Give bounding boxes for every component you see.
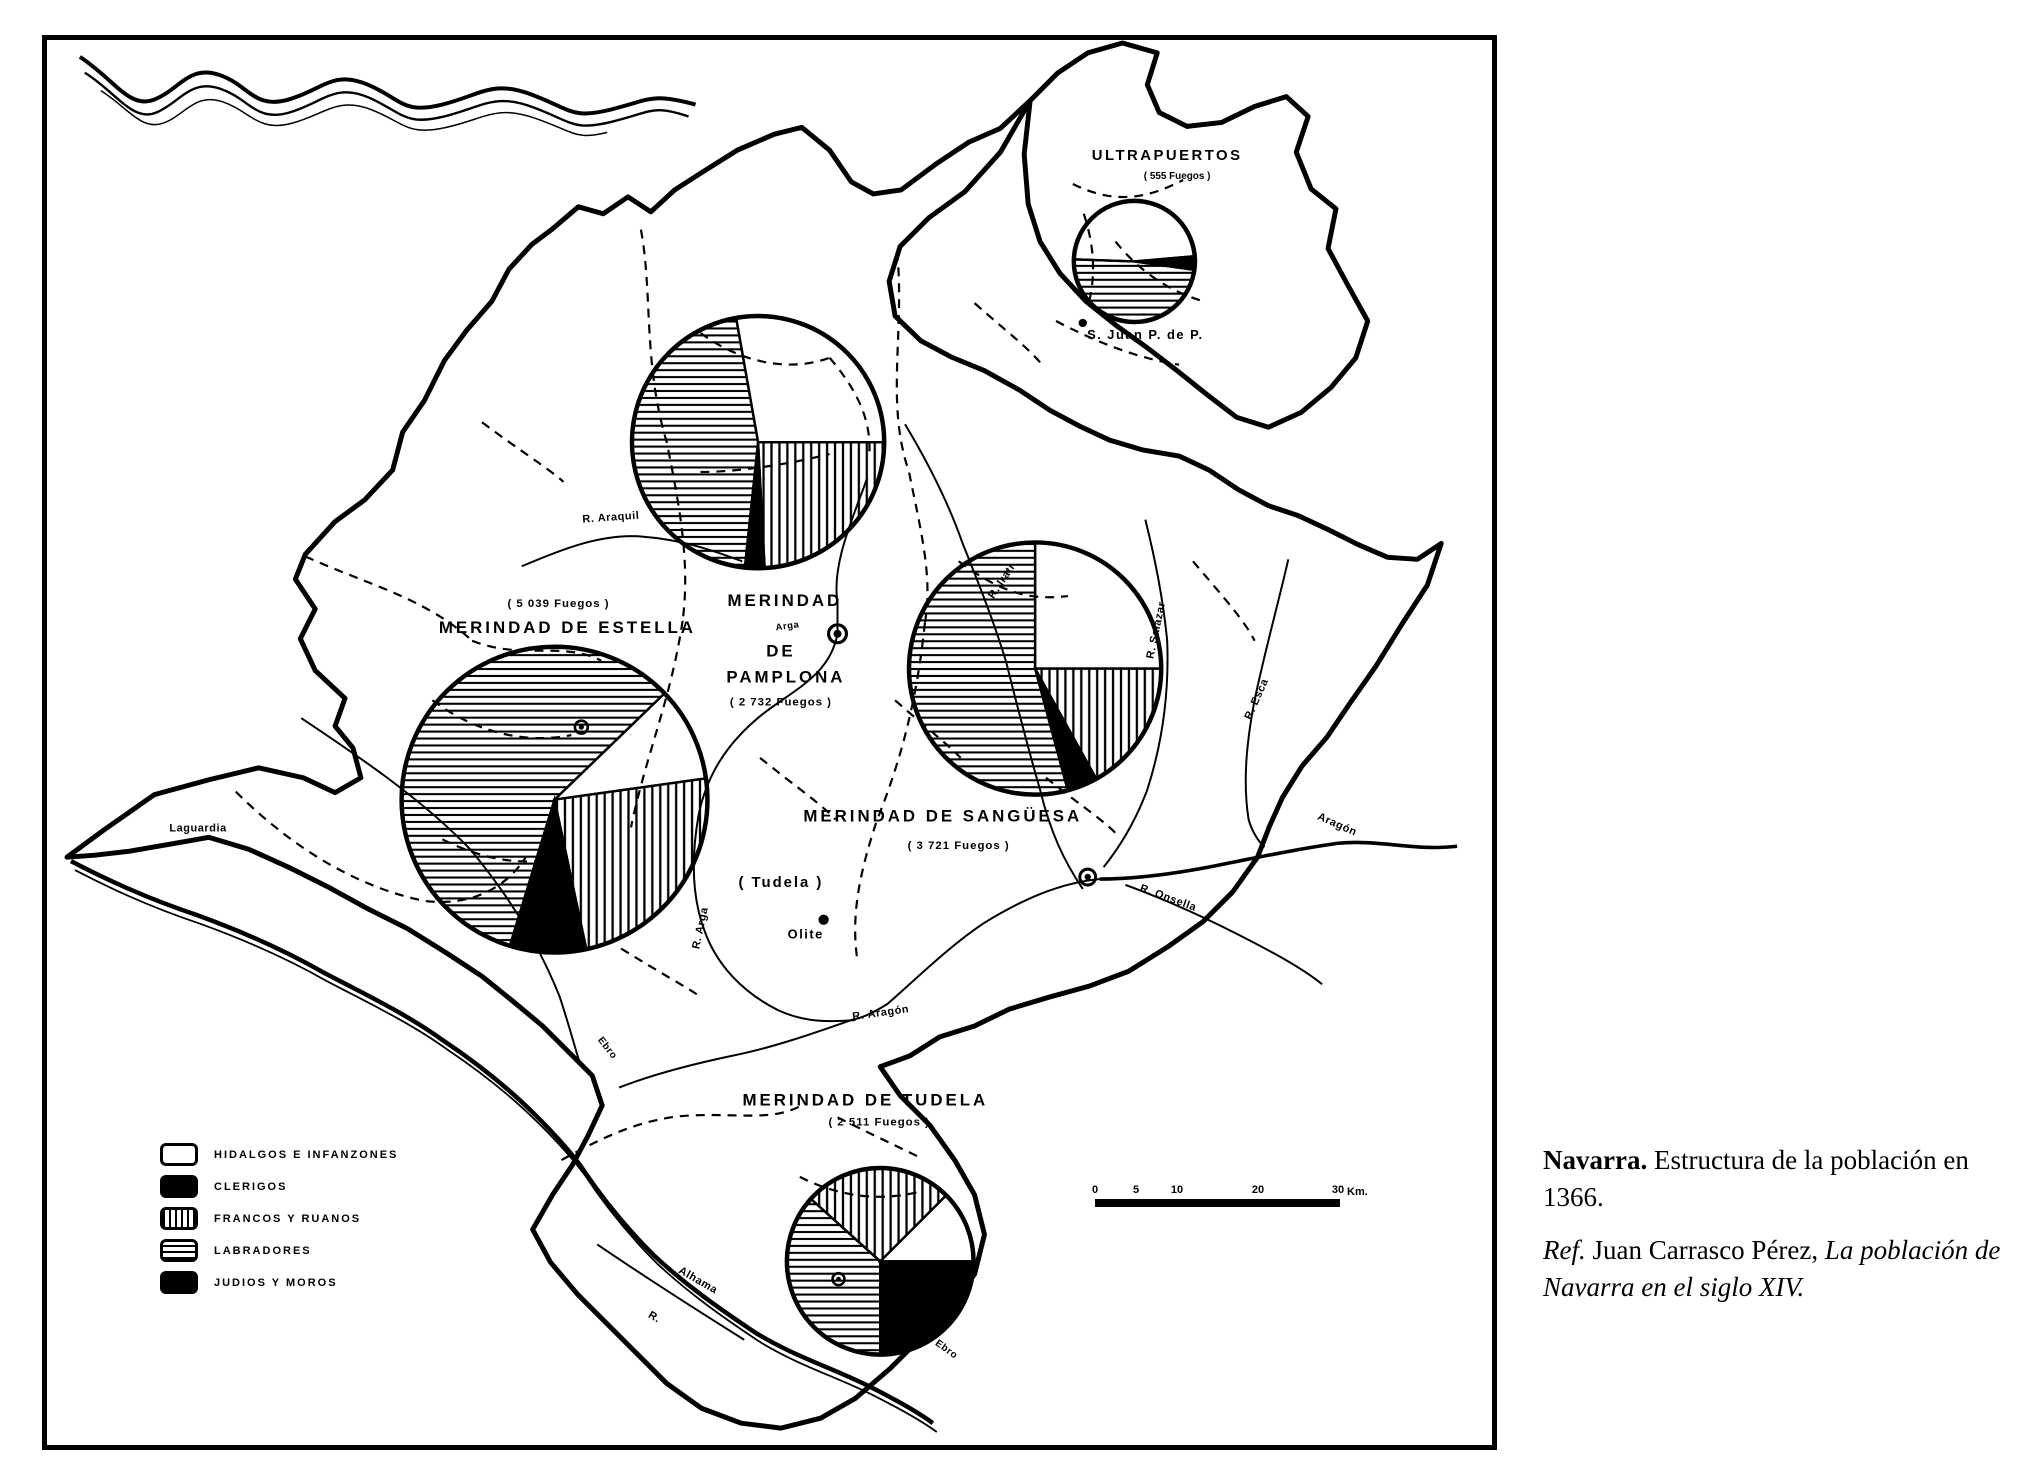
town-dot-estella-core xyxy=(579,725,584,730)
label-river-araquil: R. Araquil xyxy=(582,510,640,526)
river-aragon-lower xyxy=(619,879,1100,1088)
label-olite: Olite xyxy=(788,927,824,942)
label-river-arga: R. Arga xyxy=(690,906,711,950)
legend-swatch-black xyxy=(160,1271,198,1294)
label-tudela-name: MERINDAD DE TUDELA xyxy=(743,1090,989,1109)
label-ebro-2: Ebro xyxy=(933,1338,960,1362)
legend-swatch-vertical-stripes xyxy=(160,1207,198,1230)
figure-page: ULTRAPUERTOS ( 555 Fuegos ) S. Juan P. d… xyxy=(0,0,2028,1484)
label-pamplona-merindad: MERINDAD xyxy=(728,591,843,610)
legend-label: FRANCOS Y RUANOS xyxy=(214,1213,361,1225)
label-estella-name: MERINDAD DE ESTELLA xyxy=(439,618,696,637)
label-river-onsella: R. Onsella xyxy=(1138,882,1198,914)
label-river-arga-short: Arga xyxy=(775,618,800,632)
coast-wave-path xyxy=(85,73,689,126)
legend-swatch-horizontal-stripes xyxy=(160,1239,198,1262)
legend-item-clerigos: CLERIGOS xyxy=(160,1175,398,1198)
town-dot-tudela-core xyxy=(836,1277,841,1282)
label-sanguesa-name: MERINDAD DE SANGÜESA xyxy=(803,806,1082,825)
river-aragon xyxy=(1100,842,1457,879)
town-dot-san-juan xyxy=(1079,319,1087,327)
label-pamplona-de: DE xyxy=(766,642,795,661)
boundary-path xyxy=(1193,561,1255,640)
pie-estella xyxy=(402,647,708,953)
pie-sanguesa xyxy=(909,542,1161,794)
pie-tudela xyxy=(787,1168,974,1355)
legend-item-labradores: LABRADORES xyxy=(160,1239,398,1262)
caption-ref-label: Ref. xyxy=(1543,1235,1586,1265)
town-dot-pamplona-core xyxy=(834,630,842,638)
pie-sector-labradores xyxy=(632,318,758,568)
pie-ultrapuertos xyxy=(1074,200,1195,322)
label-ultrapuertos: ULTRAPUERTOS xyxy=(1092,148,1243,164)
scale-bar: 0 5 10 20 30 Km. xyxy=(1095,1184,1395,1214)
coast-wave-path xyxy=(80,57,696,114)
boundary-path xyxy=(975,303,1043,365)
legend-label: HIDALGOS E INFANZONES xyxy=(214,1149,398,1161)
pie-sector-hidalgos_e_infanzones xyxy=(736,316,884,442)
scale-tick: 10 xyxy=(1171,1184,1183,1196)
label-tudela-paren: ( Tudela ) xyxy=(738,875,823,891)
legend-swatch-black xyxy=(160,1175,198,1198)
scale-tick: 30 xyxy=(1332,1184,1344,1196)
label-pamplona-name: PAMPLONA xyxy=(726,667,845,686)
legend-label: JUDIOS Y MOROS xyxy=(214,1277,338,1289)
label-alhama-r: R. xyxy=(646,1309,662,1325)
scale-tick: 0 xyxy=(1092,1184,1098,1196)
label-san-juan: S. Juan P. de P. xyxy=(1087,327,1204,342)
coastline-waves xyxy=(80,57,696,136)
caption-title: Navarra. Estructura de la población en 1… xyxy=(1543,1142,2025,1216)
coast-wave-path xyxy=(101,91,607,136)
scale-unit: Km. xyxy=(1347,1186,1368,1198)
label-ultrapuertos-fuegos: ( 555 Fuegos ) xyxy=(1144,171,1211,182)
ultrapuertos-outline xyxy=(1024,43,1368,427)
scale-bar-line xyxy=(1095,1199,1340,1207)
legend-label: CLERIGOS xyxy=(214,1181,287,1193)
figure-caption: Navarra. Estructura de la población en 1… xyxy=(1543,1142,2025,1306)
boundary-path xyxy=(621,949,702,999)
label-laguardia: Laguardia xyxy=(169,822,227,834)
legend: HIDALGOS E INFANZONES CLERIGOS FRANCOS Y… xyxy=(160,1143,398,1303)
pie-pamplona xyxy=(632,316,884,568)
label-river-aragon: R. Aragón xyxy=(852,1003,910,1023)
pie-sector-labradores xyxy=(1074,259,1195,322)
label-pamplona-fuegos: ( 2 732 Fuegos ) xyxy=(730,696,832,708)
label-tudela-fuegos: ( 2 511 Fuegos ) xyxy=(828,1116,929,1128)
legend-swatch-white xyxy=(160,1143,198,1166)
legend-item-francos: FRANCOS Y RUANOS xyxy=(160,1207,398,1230)
legend-item-judios: JUDIOS Y MOROS xyxy=(160,1271,398,1294)
boundary-path xyxy=(482,422,563,482)
scale-tick: 5 xyxy=(1133,1184,1139,1196)
legend-label: LABRADORES xyxy=(214,1245,312,1257)
label-sanguesa-fuegos: ( 3 721 Fuegos ) xyxy=(908,840,1010,852)
river-alhama xyxy=(597,1244,744,1339)
scale-tick: 20 xyxy=(1252,1184,1264,1196)
caption-ref-author: Juan Carrasco Pérez, xyxy=(1586,1235,1825,1265)
caption-title-bold: Navarra. xyxy=(1543,1145,1647,1175)
town-dot-sanguesa-core xyxy=(1085,874,1091,880)
label-estella-fuegos: ( 5 039 Fuegos ) xyxy=(507,598,609,610)
town-dot-olite xyxy=(818,915,828,925)
label-river-esca: R. Esca xyxy=(1242,676,1271,721)
label-aragon: Aragón xyxy=(1316,811,1359,839)
boundary-path xyxy=(1073,180,1183,197)
legend-item-hidalgos: HIDALGOS E INFANZONES xyxy=(160,1143,398,1166)
label-ebro-1: Ebro xyxy=(595,1035,619,1061)
caption-reference: Ref. Juan Carrasco Pérez, La población d… xyxy=(1543,1232,2025,1306)
